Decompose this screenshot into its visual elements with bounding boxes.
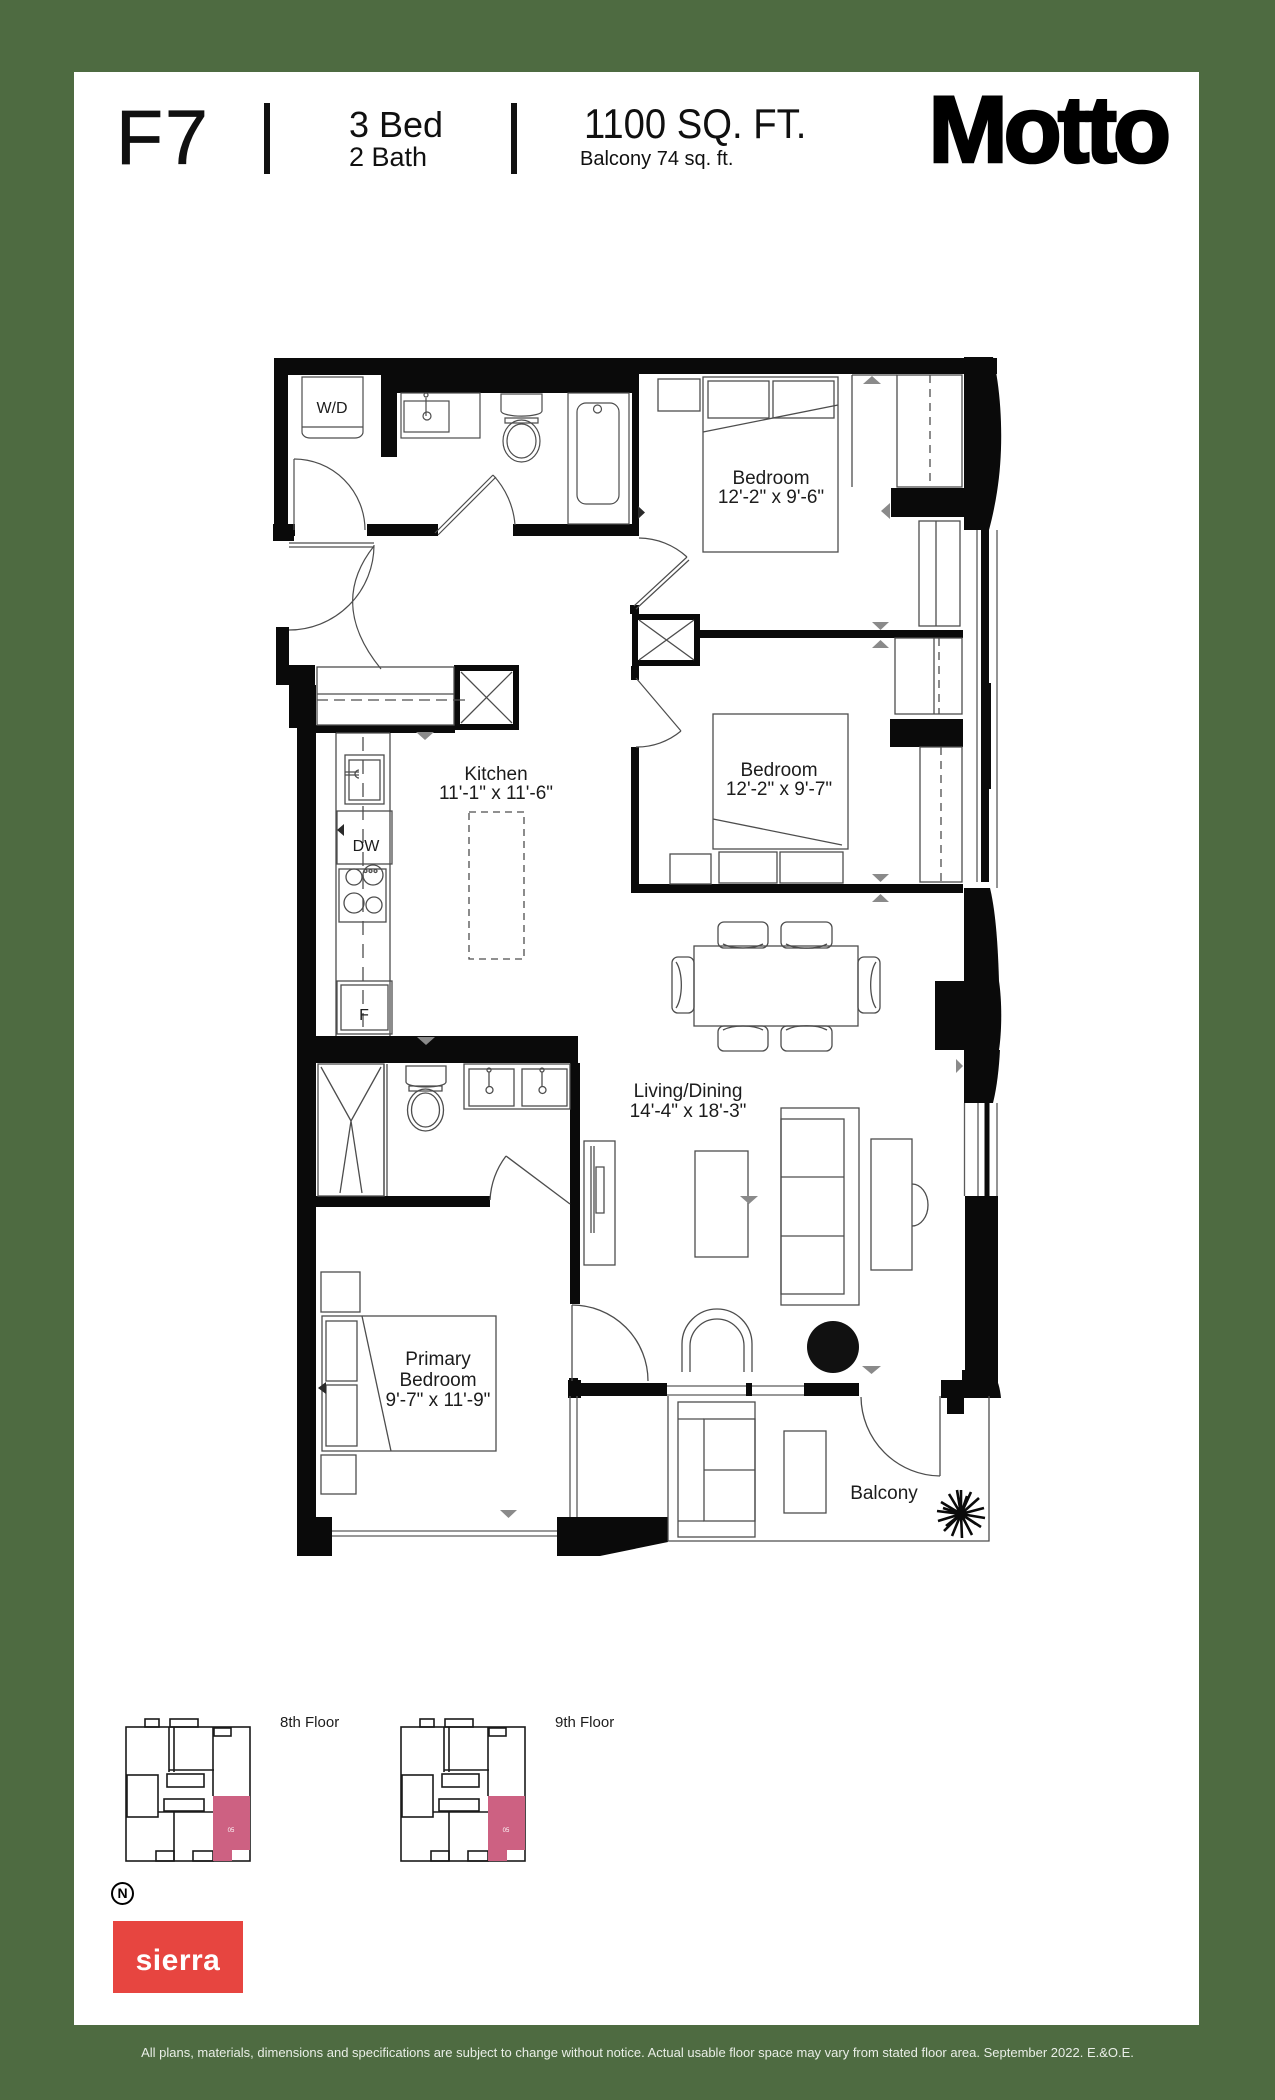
svg-text:W/D: W/D: [316, 400, 347, 417]
svg-text:12'-2" x 9'-7": 12'-2" x 9'-7": [726, 779, 832, 800]
svg-text:14'-4" x 18'-3": 14'-4" x 18'-3": [630, 1101, 747, 1122]
svg-text:DW: DW: [353, 838, 381, 855]
svg-text:Bedroom: Bedroom: [740, 760, 817, 781]
svg-text:Bedroom: Bedroom: [732, 468, 809, 489]
svg-text:8th Floor: 8th Floor: [280, 1714, 339, 1731]
svg-text:11'-1" x 11'-6": 11'-1" x 11'-6": [439, 783, 553, 804]
svg-text:Kitchen: Kitchen: [464, 764, 527, 785]
svg-text:05: 05: [228, 1828, 235, 1834]
svg-text:F: F: [359, 1007, 369, 1024]
svg-text:Primary: Primary: [405, 1349, 471, 1370]
svg-text:9'-7" x 11'-9": 9'-7" x 11'-9": [386, 1390, 491, 1411]
svg-text:Living/Dining: Living/Dining: [634, 1081, 743, 1102]
svg-text:Bedroom: Bedroom: [399, 1370, 476, 1391]
svg-text:12'-2" x 9'-6": 12'-2" x 9'-6": [718, 487, 824, 508]
svg-text:9th Floor: 9th Floor: [555, 1714, 614, 1731]
svg-text:Balcony: Balcony: [850, 1483, 918, 1504]
